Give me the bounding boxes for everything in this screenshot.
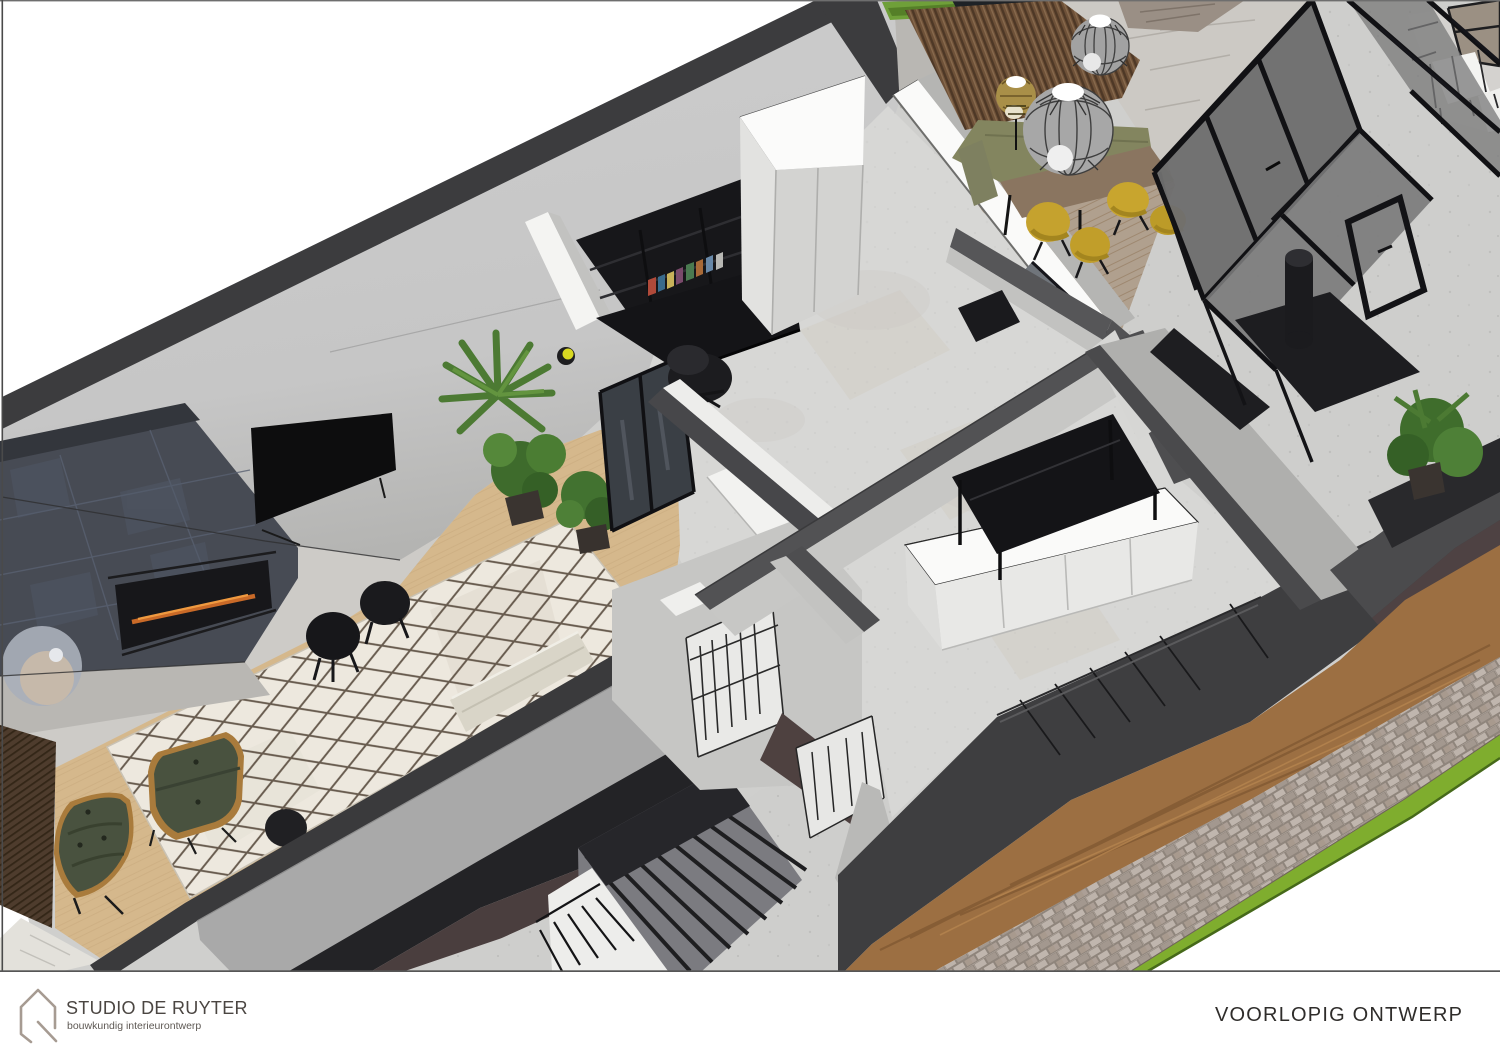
svg-text:STUDIO DE RUYTER: STUDIO DE RUYTER: [66, 998, 248, 1018]
svg-text:VOORLOPIG ONTWERP: VOORLOPIG ONTWERP: [1215, 1004, 1463, 1026]
svg-text:bouwkundig interieurontwerp: bouwkundig interieurontwerp: [67, 1020, 201, 1032]
